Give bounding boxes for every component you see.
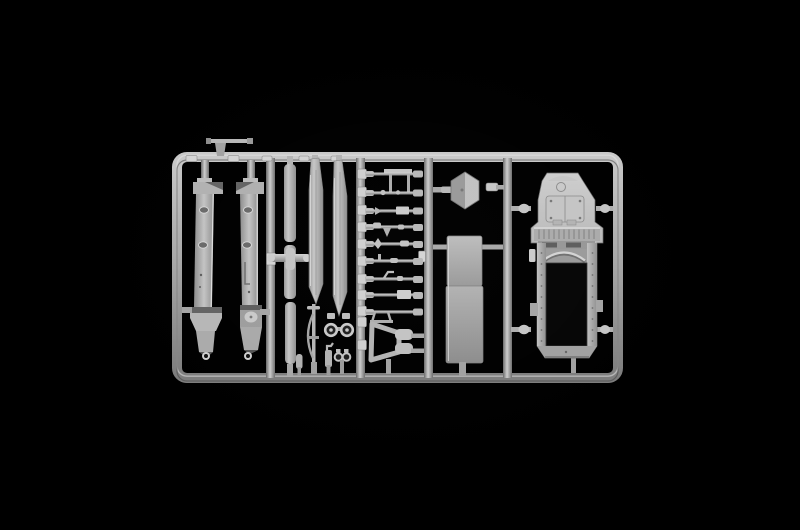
linkage-part <box>365 169 423 193</box>
cowl <box>540 249 588 263</box>
bed-panel-right <box>333 155 347 316</box>
rail-foot <box>240 327 262 354</box>
roller-cap <box>336 349 341 353</box>
sprue-gate <box>459 362 466 376</box>
rivet-hole <box>248 291 250 293</box>
floor-panel-upper <box>447 236 482 286</box>
side-tab <box>530 303 538 316</box>
bow-stand-part <box>307 304 320 374</box>
lightening-hole <box>200 207 209 213</box>
bed-panel-left <box>309 155 323 304</box>
cab-shell-part <box>511 173 613 373</box>
wheel-hub <box>345 328 349 332</box>
tow-frame-outline <box>371 324 399 360</box>
gate-knob <box>519 325 530 335</box>
sprue-gate <box>298 367 302 376</box>
stand-crossbar <box>307 336 319 339</box>
hex-stub <box>441 187 452 194</box>
fitting-pill <box>296 354 303 369</box>
linkage-part <box>365 290 423 299</box>
pump-spout <box>327 343 333 351</box>
small-fittings-row <box>296 343 350 376</box>
lightening-hole <box>243 242 252 248</box>
exhaust-segment <box>285 302 296 364</box>
linkage-part <box>365 223 423 238</box>
sprue-gate <box>327 365 331 375</box>
sprue-gate <box>386 359 391 374</box>
hinge-dot <box>579 200 582 203</box>
gate-knob <box>600 325 610 334</box>
linkage-set <box>358 169 425 374</box>
lever-bar <box>207 139 253 143</box>
tow-cylinder <box>395 329 413 340</box>
chassis-rail-left <box>182 160 223 359</box>
filler-cap-dot <box>250 316 253 319</box>
sprue-photo <box>0 0 800 530</box>
sprue-gate <box>482 245 503 250</box>
louver-band-highlight <box>534 227 600 229</box>
wheel-hub <box>329 328 333 332</box>
hinge-dot <box>579 217 582 220</box>
sprue-gate <box>433 245 447 250</box>
wheel-bracket <box>342 313 350 319</box>
exhaust-collar <box>286 248 296 270</box>
vertical-runner-4 <box>424 158 433 378</box>
side-bracket <box>529 249 536 262</box>
roller <box>335 353 343 361</box>
tow-frame-part <box>371 324 424 374</box>
washer-ring <box>245 353 251 359</box>
vertical-runner-5 <box>503 158 512 378</box>
roller-cap <box>344 349 349 353</box>
linkage-part <box>365 238 423 249</box>
cab-opening <box>546 263 587 346</box>
sprue-gate <box>496 185 504 190</box>
sprue-gate <box>260 309 270 315</box>
wheel-bracket <box>327 313 335 319</box>
exhaust-segment <box>284 164 296 242</box>
hinge-dot <box>550 217 553 220</box>
linkage-part <box>365 272 423 283</box>
sprue-gate <box>287 364 293 376</box>
lightening-hole <box>244 207 253 213</box>
bonnet-latch <box>553 220 562 225</box>
rivet-hole <box>200 274 202 276</box>
floor-panels <box>433 236 503 376</box>
bottom-dot <box>565 351 567 353</box>
gate-knob <box>519 204 530 214</box>
vent-slot <box>566 243 581 248</box>
sprue-gate <box>411 334 424 339</box>
vertical-runner-2 <box>266 158 275 378</box>
lever-bar-endcap-left <box>206 138 211 144</box>
sprue-gate <box>182 307 192 313</box>
hex-tank-part <box>433 172 504 209</box>
tow-cylinder <box>395 343 413 354</box>
lever-bar-endcap-right <box>247 138 253 144</box>
floor-panel-lower <box>446 286 483 363</box>
hex-dot <box>461 189 464 192</box>
crossbar-cap <box>267 254 275 262</box>
fender-shadow <box>190 307 222 313</box>
sprue-gate <box>340 360 344 374</box>
sprue-gate <box>571 357 576 373</box>
filler-block-shadow <box>240 305 262 310</box>
sprue-gate <box>311 362 317 374</box>
washer-ring <box>203 353 209 359</box>
linkage-part <box>365 309 423 324</box>
gate-knob <box>600 204 610 213</box>
hinge-dot <box>550 200 553 203</box>
sprue-gate <box>411 349 424 354</box>
side-tab <box>596 300 603 312</box>
roller <box>343 353 351 361</box>
photo-canvas <box>0 0 800 530</box>
bonnet-latch <box>567 220 576 225</box>
pump-body <box>325 350 332 367</box>
chassis-rail-right <box>236 160 270 359</box>
rivet-hole <box>199 286 201 288</box>
linkage-part <box>365 207 423 216</box>
hex-facet-right <box>465 172 479 209</box>
linkage-part <box>365 254 423 265</box>
lightening-hole <box>199 242 208 248</box>
linkage-part <box>365 190 423 197</box>
